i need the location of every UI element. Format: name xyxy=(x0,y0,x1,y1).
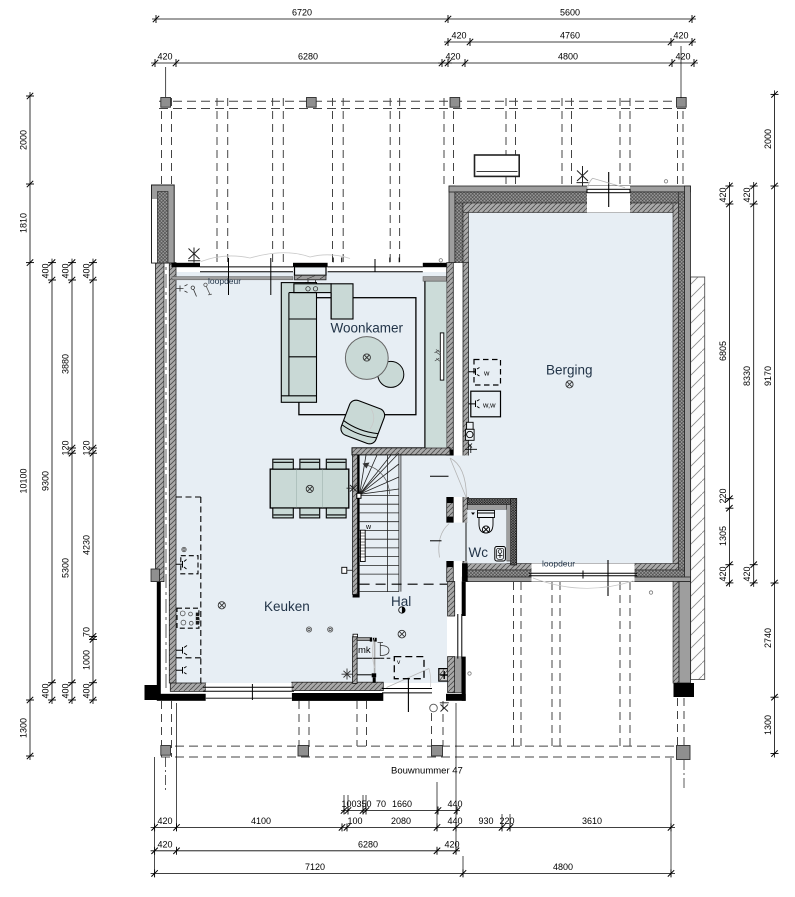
svg-text:1660: 1660 xyxy=(392,799,412,809)
svg-text:440: 440 xyxy=(447,816,462,826)
svg-text:400: 400 xyxy=(41,263,51,278)
svg-text:1810: 1810 xyxy=(19,213,29,233)
svg-text:1300: 1300 xyxy=(19,718,29,738)
svg-text:70: 70 xyxy=(376,799,386,809)
svg-text:420: 420 xyxy=(673,31,688,41)
svg-text:220: 220 xyxy=(718,488,728,503)
svg-text:4800: 4800 xyxy=(553,862,573,872)
svg-text:6280: 6280 xyxy=(298,52,318,62)
svg-text:70: 70 xyxy=(82,627,92,637)
svg-text:420: 420 xyxy=(718,566,728,581)
svg-text:w: w xyxy=(365,524,372,531)
svg-text:mk: mk xyxy=(358,645,371,656)
svg-text:Wc: Wc xyxy=(469,545,489,560)
svg-text:420: 420 xyxy=(157,816,172,826)
svg-text:400: 400 xyxy=(61,263,71,278)
svg-text:420: 420 xyxy=(742,187,752,202)
svg-text:w,w: w,w xyxy=(482,401,496,410)
svg-text:4230: 4230 xyxy=(82,535,92,555)
svg-text:1305: 1305 xyxy=(718,526,728,546)
svg-text:loopdeur: loopdeur xyxy=(542,559,575,569)
svg-text:Keuken: Keuken xyxy=(264,599,310,614)
svg-text:Woonkamer: Woonkamer xyxy=(331,321,404,336)
svg-text:120: 120 xyxy=(61,440,71,455)
svg-text:420: 420 xyxy=(157,52,172,62)
svg-text:6280: 6280 xyxy=(358,839,378,849)
svg-text:4100: 4100 xyxy=(251,816,271,826)
svg-text:5600: 5600 xyxy=(560,8,580,18)
svg-text:400: 400 xyxy=(61,683,71,698)
svg-text:9300: 9300 xyxy=(41,471,51,491)
svg-text:6805: 6805 xyxy=(718,341,728,361)
svg-text:7120: 7120 xyxy=(305,862,325,872)
svg-text:400: 400 xyxy=(82,263,92,278)
svg-text:120: 120 xyxy=(82,440,92,455)
svg-text:8330: 8330 xyxy=(742,366,752,386)
svg-text:400: 400 xyxy=(41,683,51,698)
svg-text:6720: 6720 xyxy=(292,8,312,18)
svg-text:420: 420 xyxy=(675,52,690,62)
svg-text:2000: 2000 xyxy=(763,129,773,149)
svg-text:1300: 1300 xyxy=(763,715,773,735)
svg-text:2000: 2000 xyxy=(19,130,29,150)
svg-text:420: 420 xyxy=(445,52,460,62)
svg-text:100: 100 xyxy=(347,816,362,826)
svg-text:350: 350 xyxy=(356,799,371,809)
svg-text:Bouwnummer 47: Bouwnummer 47 xyxy=(391,766,463,777)
svg-text:4800: 4800 xyxy=(558,52,578,62)
svg-text:9170: 9170 xyxy=(763,366,773,386)
svg-text:Berging: Berging xyxy=(546,363,593,378)
svg-text:w: w xyxy=(483,369,490,378)
svg-text:Hal: Hal xyxy=(391,594,411,609)
svg-text:440: 440 xyxy=(447,799,462,809)
svg-text:400: 400 xyxy=(82,683,92,698)
svg-text:10100: 10100 xyxy=(19,468,29,493)
svg-text:3880: 3880 xyxy=(61,354,71,374)
svg-text:930: 930 xyxy=(478,816,493,826)
svg-text:420: 420 xyxy=(718,187,728,202)
svg-text:420: 420 xyxy=(742,566,752,581)
svg-text:4760: 4760 xyxy=(560,31,580,41)
svg-text:5300: 5300 xyxy=(61,558,71,578)
svg-text:3610: 3610 xyxy=(582,816,602,826)
svg-text:1000: 1000 xyxy=(82,650,92,670)
svg-text:420: 420 xyxy=(157,839,172,849)
svg-text:2740: 2740 xyxy=(763,628,773,648)
svg-text:loopdeur: loopdeur xyxy=(208,276,241,286)
svg-text:2080: 2080 xyxy=(391,816,411,826)
svg-text:420: 420 xyxy=(444,839,459,849)
svg-text:420: 420 xyxy=(451,31,466,41)
